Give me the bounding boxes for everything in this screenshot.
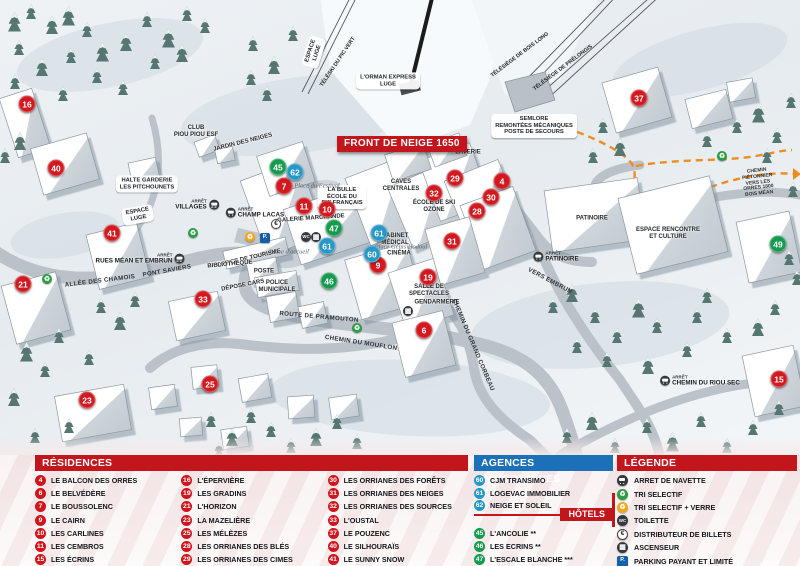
service-icon — [352, 323, 362, 333]
map-label: HALTE GARDERIE LES PITCHOUNETS — [116, 175, 178, 192]
hotels-divider: HÔTELS — [474, 514, 613, 526]
legende-row: DISTRIBUTEUR DE BILLETS — [617, 528, 797, 541]
residence-number-badge: 21 — [181, 501, 192, 512]
agences-section: AGENCES IMMOBILIÈRES 60 CJM TRANSIMO 61 … — [474, 455, 613, 566]
legende-row: TOILETTE — [617, 514, 797, 527]
service-icon — [301, 232, 311, 242]
residence-number-badge: 9 — [35, 515, 46, 526]
legende-row: ASCENSEUR — [617, 541, 797, 554]
map-marker[interactable]: 29 — [447, 170, 464, 187]
hotels-list: 45 L'ANCOLIE ** 46 LES ECRINS ** 47 L'ES… — [474, 527, 613, 566]
map-marker[interactable]: 11 — [296, 198, 313, 215]
bus-icon — [226, 208, 236, 218]
map-canvas: FRONT DE NEIGE 1650 CLUB PIOU PIOU ESF J… — [0, 0, 800, 455]
agence-number-badge: 62 — [474, 500, 485, 511]
bus-icon — [660, 376, 670, 386]
agence-number-badge: 61 — [474, 488, 485, 499]
map-marker[interactable]: 7 — [276, 178, 293, 195]
legend-panel: RÉSIDENCES 4 LE BALCON DES ORRES 6 LE BE… — [0, 455, 800, 566]
residence-number-badge: 6 — [35, 488, 46, 499]
legende-icon — [617, 529, 628, 540]
agence-number-badge: 60 — [474, 475, 485, 486]
map-marker[interactable]: 6 — [416, 322, 433, 339]
bus-icon — [209, 200, 219, 210]
residence-number-badge: 4 — [35, 475, 46, 486]
agence-row[interactable]: 61 LOGEVAC IMMOBILIER — [474, 487, 613, 500]
map-marker[interactable]: 19 — [420, 269, 437, 286]
residence-number-badge: 7 — [35, 501, 46, 512]
map-marker[interactable]: 45 — [270, 159, 287, 176]
bus-stop-text: ARRÊT RUES MÉAN ET EMBRUN — [96, 254, 173, 265]
legende-label: TRI SELECTIF — [634, 490, 682, 499]
residence-name: LES ORRIANES DES FORÊTS — [344, 476, 446, 485]
map-label: Place du Festival — [294, 182, 339, 189]
residence-name: LE SUNNY SNOW — [344, 555, 405, 564]
map-marker[interactable]: 32 — [426, 185, 443, 202]
legende-label: PARKING PAYANT ET LIMITÉ — [634, 557, 733, 566]
residence-name: LE POUZENC — [344, 529, 390, 538]
residence-number-badge: 37 — [328, 528, 339, 539]
service-icon — [271, 219, 281, 229]
legende-icon — [617, 542, 628, 553]
service-icon — [188, 228, 198, 238]
residence-name: LE CAIRN — [51, 516, 85, 525]
residence-number-badge: 25 — [181, 528, 192, 539]
map-label: CLUB PIOU PIOU ESF — [174, 125, 218, 139]
service-icon — [42, 274, 52, 284]
bus-stop-name: CHEMIN DU RIOU SEC — [672, 380, 740, 386]
map-marker[interactable]: 40 — [48, 160, 65, 177]
map-marker[interactable]: 10 — [319, 201, 336, 218]
legende-list: ARRET DE NAVETTE TRI SELECTIF TRI SELECT… — [617, 474, 797, 566]
legende-row: PARKING PAYANT ET LIMITÉ — [617, 554, 797, 566]
map-marker[interactable]: 61 — [319, 238, 336, 255]
map-label: Place Génis Hodoul — [375, 243, 428, 250]
residence-row[interactable]: 15 LES ÉCRINS — [35, 553, 175, 566]
residence-row[interactable]: 10 LES CARLINES — [35, 527, 175, 540]
map-marker[interactable]: 28 — [469, 203, 486, 220]
legende-icon — [617, 475, 628, 486]
bus-stop-name: VILLAGES — [175, 204, 207, 210]
legende-icon — [617, 515, 628, 526]
bus-icon — [533, 252, 543, 262]
residence-name: LES CARLINES — [51, 529, 104, 538]
map-marker[interactable]: 61 — [371, 225, 388, 242]
map-marker[interactable]: 15 — [771, 371, 788, 388]
residence-number-badge: 11 — [35, 541, 46, 552]
map-label: PATINOIRE — [576, 216, 608, 223]
hotels-title: HÔTELS — [560, 508, 613, 521]
residence-row[interactable]: 6 LE BELVÉDÈRE — [35, 487, 175, 500]
legende-row: TRI SELECTIF + VERRE — [617, 501, 797, 514]
map-marker[interactable]: 25 — [202, 376, 219, 393]
map-marker[interactable]: 60 — [364, 246, 381, 263]
map-label: CINÉMA — [387, 251, 411, 258]
residence-name: LES ORRIANES DES SOURCES — [344, 502, 452, 511]
bus-stop: ARRÊT RUES MÉAN ET EMBRUN — [96, 254, 185, 265]
residence-number-badge: 23 — [181, 515, 192, 526]
map-marker[interactable]: 46 — [321, 273, 338, 290]
residence-row[interactable]: 28 LES ORRIANES DES BLÉS — [181, 540, 321, 553]
bus-stop: ARRÊT PATINOIRE — [533, 252, 578, 263]
bus-stop-name: RUES MÉAN ET EMBRUN — [96, 258, 173, 264]
residence-number-badge: 32 — [328, 501, 339, 512]
legende-label: DISTRIBUTEUR DE BILLETS — [634, 530, 731, 539]
agence-row[interactable]: 60 CJM TRANSIMO — [474, 474, 613, 487]
residences-list: 4 LE BALCON DES ORRES 6 LE BELVÉDÈRE 7 L… — [35, 474, 468, 566]
hotel-number-badge: 45 — [474, 528, 485, 539]
residence-row[interactable]: 32 LES ORRIANES DES SOURCES — [328, 500, 468, 513]
map-label: POSTE — [254, 269, 274, 276]
map-marker[interactable]: 49 — [770, 236, 787, 253]
legende-row: ARRET DE NAVETTE — [617, 474, 797, 487]
residence-name: LES ORRIANES DES BLÉS — [197, 542, 289, 551]
residence-name: LE SILHOURAÏS — [344, 542, 400, 551]
residences-title: RÉSIDENCES — [35, 455, 468, 471]
agence-name: LOGEVAC IMMOBILIER — [490, 489, 570, 498]
legende-icon — [617, 556, 628, 566]
bus-stop: ARRÊT CHEMIN DU RIOU SEC — [660, 376, 740, 387]
legende-label: ASCENSEUR — [634, 543, 679, 552]
service-icon — [245, 232, 255, 242]
residence-name: L'HORIZON — [197, 502, 236, 511]
bus-stop-name: PATINOIRE — [545, 256, 578, 262]
service-icon — [260, 233, 270, 243]
residence-name: LA MAZELIÈRE — [197, 516, 250, 525]
residence-row[interactable]: 21 L'HORIZON — [181, 500, 321, 513]
hotel-number-badge: 47 — [474, 554, 485, 565]
agences-list: 60 CJM TRANSIMO 61 LOGEVAC IMMOBILIER 62… — [474, 474, 613, 512]
map-marker[interactable]: 21 — [15, 276, 32, 293]
residence-row[interactable]: 16 L'ÉPERVIÈRE — [181, 474, 321, 487]
bus-stop-text: ARRÊT PATINOIRE — [545, 252, 578, 263]
map-marker[interactable]: 33 — [195, 291, 212, 308]
residence-row[interactable]: 41 LE SUNNY SNOW — [328, 553, 468, 566]
residence-name: LES GRADINS — [197, 489, 246, 498]
map-marker[interactable]: 4 — [494, 173, 511, 190]
residence-row[interactable]: 40 LE SILHOURAÏS — [328, 540, 468, 553]
residence-name: LE BALCON DES ORRES — [51, 476, 137, 485]
legende-icon — [617, 489, 628, 500]
residence-row[interactable]: 25 LES MÉLÈZES — [181, 527, 321, 540]
residence-number-badge: 10 — [35, 528, 46, 539]
hotel-name: L'ESCALE BLANCHE *** — [490, 555, 573, 564]
legende-icon — [617, 502, 628, 513]
hotel-row[interactable]: 45 L'ANCOLIE ** — [474, 527, 613, 540]
residence-number-badge: 33 — [328, 515, 339, 526]
residence-row[interactable]: 29 LES ORRIANES DES CIMES — [181, 553, 321, 566]
agence-name: CJM TRANSIMO — [490, 476, 546, 485]
map-label: L'ORMAN EXPRESS LUGE — [356, 72, 420, 89]
residence-name: LE BELVÉDÈRE — [51, 489, 106, 498]
hotel-row[interactable]: 47 L'ESCALE BLANCHE *** — [474, 553, 613, 566]
legende-label: TRI SELECTIF + VERRE — [634, 503, 715, 512]
front-de-neige-banner: FRONT DE NEIGE 1650 — [337, 136, 467, 152]
service-icon — [403, 306, 413, 316]
map-marker[interactable]: 37 — [631, 90, 648, 107]
legende-section: LÉGENDE ARRET DE NAVETTE TRI SELECTIF — [617, 455, 797, 566]
service-icon — [717, 151, 727, 161]
residence-number-badge: 31 — [328, 488, 339, 499]
resort-map-page: FRONT DE NEIGE 1650 CLUB PIOU PIOU ESF J… — [0, 0, 800, 566]
bus-stop-text: ARRÊT VILLAGES — [175, 200, 207, 211]
residence-name: L'ÉPERVIÈRE — [197, 476, 244, 485]
residence-row[interactable]: 23 LA MAZELIÈRE — [181, 514, 321, 527]
hotel-name: LES ECRINS ** — [490, 542, 541, 551]
residence-name: LES ÉCRINS — [51, 555, 94, 564]
residence-number-badge: 29 — [181, 554, 192, 565]
residence-row[interactable]: 9 LE CAIRN — [35, 514, 175, 527]
residence-name: LES MÉLÈZES — [197, 529, 247, 538]
hotel-number-badge: 46 — [474, 541, 485, 552]
map-label: SEMLORE REMONTÉES MÉCANIQUES POSTE DE SE… — [491, 114, 577, 138]
residence-row[interactable]: 11 LES CEMBROS — [35, 540, 175, 553]
map-label: ESPACE RENCONTRE ET CULTURE — [636, 227, 700, 241]
bus-stop: ARRÊT VILLAGES — [175, 200, 219, 211]
residence-row[interactable]: 37 LE POUZENC — [328, 527, 468, 540]
residence-row[interactable]: 19 LES GRADINS — [181, 487, 321, 500]
residence-number-badge: 19 — [181, 488, 192, 499]
residence-name: LES ORRIANES DES CIMES — [197, 555, 292, 564]
hotel-row[interactable]: 46 LES ECRINS ** — [474, 540, 613, 553]
residence-number-badge: 40 — [328, 541, 339, 552]
bus-stop: ARRÊT CHAMP LACAS — [226, 208, 284, 219]
map-label: CAVES CENTRALES — [383, 179, 420, 193]
residence-name: L'OUSTAL — [344, 516, 379, 525]
residence-name: LES ORRIANES DES NEIGES — [344, 489, 444, 498]
map-marker[interactable]: 41 — [104, 225, 121, 242]
bus-stop-name: CHAMP LACAS — [238, 212, 284, 218]
bus-icon — [174, 254, 184, 264]
residence-row[interactable]: 30 LES ORRIANES DES FORÊTS — [328, 474, 468, 487]
bus-stop-text: ARRÊT CHAMP LACAS — [238, 208, 284, 219]
residence-name: LES CEMBROS — [51, 542, 104, 551]
map-marker[interactable]: 23 — [79, 392, 96, 409]
residence-row[interactable]: 4 LE BALCON DES ORRES — [35, 474, 175, 487]
legende-label: TOILETTE — [634, 516, 669, 525]
residence-row[interactable]: 7 LE BOUSSOLENC — [35, 500, 175, 513]
legende-row: TRI SELECTIF — [617, 487, 797, 500]
map-marker[interactable]: 47 — [326, 220, 343, 237]
residence-number-badge: 30 — [328, 475, 339, 486]
residence-row[interactable]: 31 LES ORRIANES DES NEIGES — [328, 487, 468, 500]
map-marker[interactable]: 31 — [444, 233, 461, 250]
legende-title: LÉGENDE — [617, 455, 797, 471]
residence-number-badge: 28 — [181, 541, 192, 552]
map-label: CHEMIN PIÉTONNIER VERS LES ORRES 1800 BO… — [736, 167, 781, 200]
map-label: Place d'accueil — [269, 248, 309, 255]
map-label: ÉCOLE DE SKI OZONE — [413, 200, 455, 214]
map-label: SALLE DE SPECTACLES — [409, 284, 449, 298]
agences-title: AGENCES IMMOBILIÈRES — [474, 455, 613, 471]
legende-label: ARRET DE NAVETTE — [634, 476, 706, 485]
map-marker[interactable]: 30 — [483, 189, 500, 206]
map-marker[interactable]: 62 — [287, 164, 304, 181]
bus-stop-text: ARRÊT CHEMIN DU RIOU SEC — [672, 376, 740, 387]
residence-row[interactable]: 33 L'OUSTAL — [328, 514, 468, 527]
hotel-name: L'ANCOLIE ** — [490, 529, 536, 538]
residence-name: LE BOUSSOLENC — [51, 502, 113, 511]
residences-section: RÉSIDENCES 4 LE BALCON DES ORRES 6 LE BE… — [35, 455, 468, 566]
residence-number-badge: 41 — [328, 554, 339, 565]
residence-number-badge: 15 — [35, 554, 46, 565]
residence-number-badge: 16 — [181, 475, 192, 486]
map-marker[interactable]: 16 — [19, 96, 36, 113]
agence-name: NEIGE ET SOLEIL — [490, 501, 552, 510]
